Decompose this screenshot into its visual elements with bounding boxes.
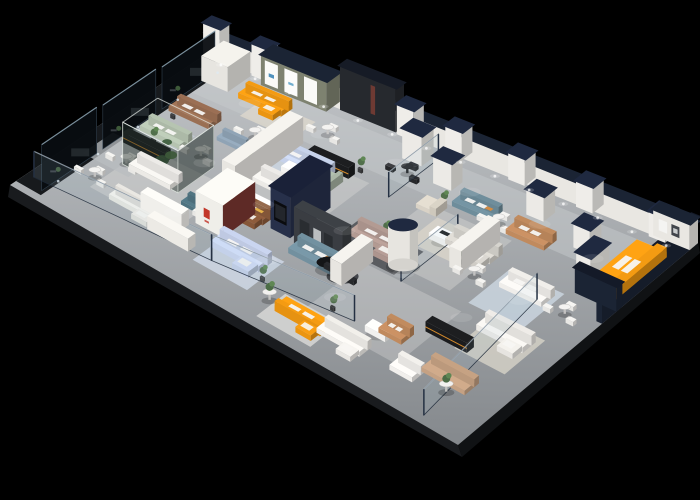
showroom-render: 3D isometric cutaway rendering of a furn…	[0, 0, 700, 500]
isometric-floorplan-svg: 3D isometric cutaway rendering of a furn…	[0, 0, 700, 500]
cylinder-column	[386, 218, 421, 274]
